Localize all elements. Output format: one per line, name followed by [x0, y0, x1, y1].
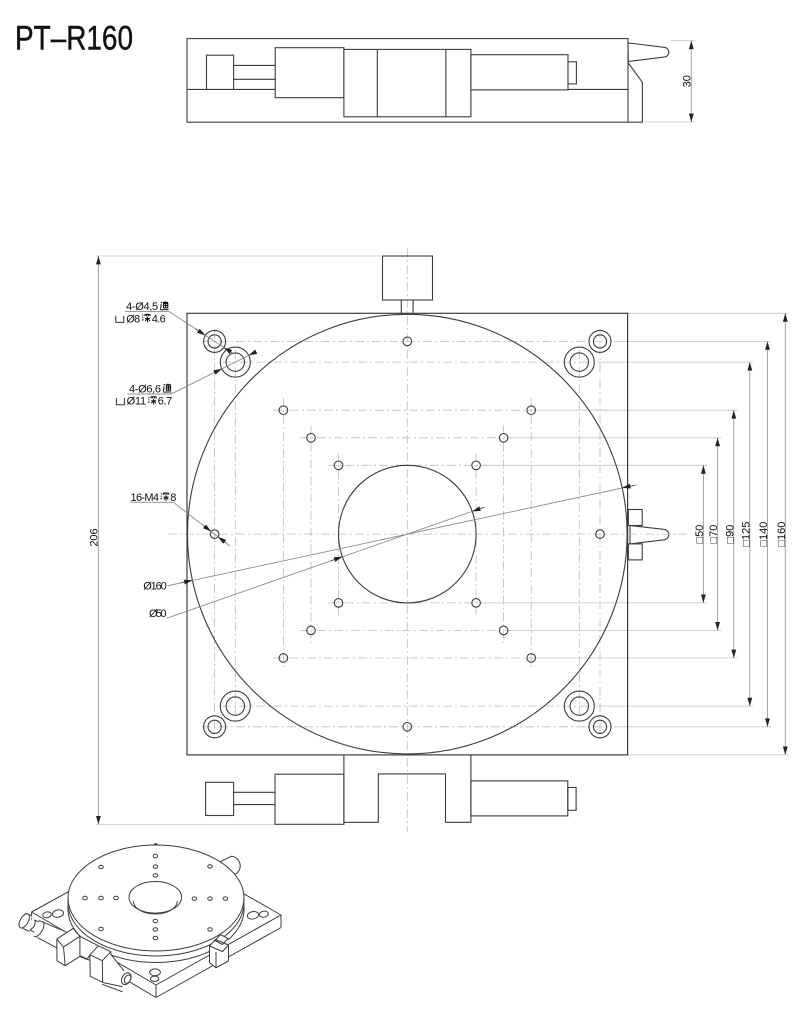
svg-text:□70: □70	[708, 525, 720, 544]
svg-text:Ø50: Ø50	[149, 608, 167, 620]
svg-text:□125: □125	[740, 522, 752, 547]
svg-text:6.7: 6.7	[158, 396, 173, 408]
svg-text:4-Ø6,6: 4-Ø6,6	[129, 383, 161, 395]
svg-text:Ø8: Ø8	[126, 313, 140, 325]
svg-text:PT–R160: PT–R160	[15, 20, 133, 58]
svg-text:Ø160: Ø160	[143, 580, 167, 592]
svg-text:Ø11: Ø11	[127, 396, 147, 408]
svg-text:□90: □90	[724, 525, 736, 544]
svg-text:□50: □50	[694, 525, 706, 544]
svg-text:30: 30	[682, 75, 694, 87]
svg-text:□160: □160	[776, 522, 788, 547]
svg-text:□140: □140	[758, 522, 770, 547]
svg-text:4.6: 4.6	[152, 313, 166, 325]
svg-text:206: 206	[89, 528, 101, 546]
